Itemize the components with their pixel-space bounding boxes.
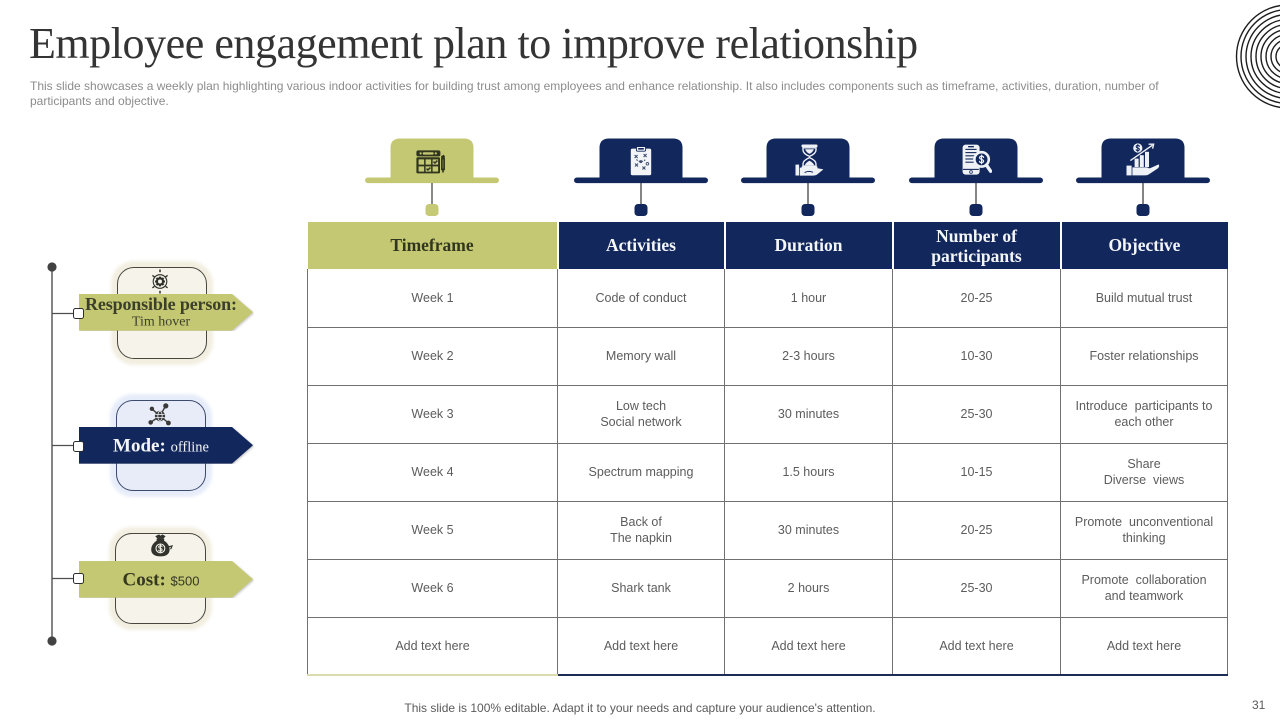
svg-text:Mode: offline: Mode: offline <box>113 436 209 457</box>
svg-text:Cost: $500: Cost: $500 <box>123 570 200 591</box>
svg-text:Tim hover: Tim hover <box>132 315 191 330</box>
svg-text:Responsible person:: Responsible person: <box>85 294 237 314</box>
